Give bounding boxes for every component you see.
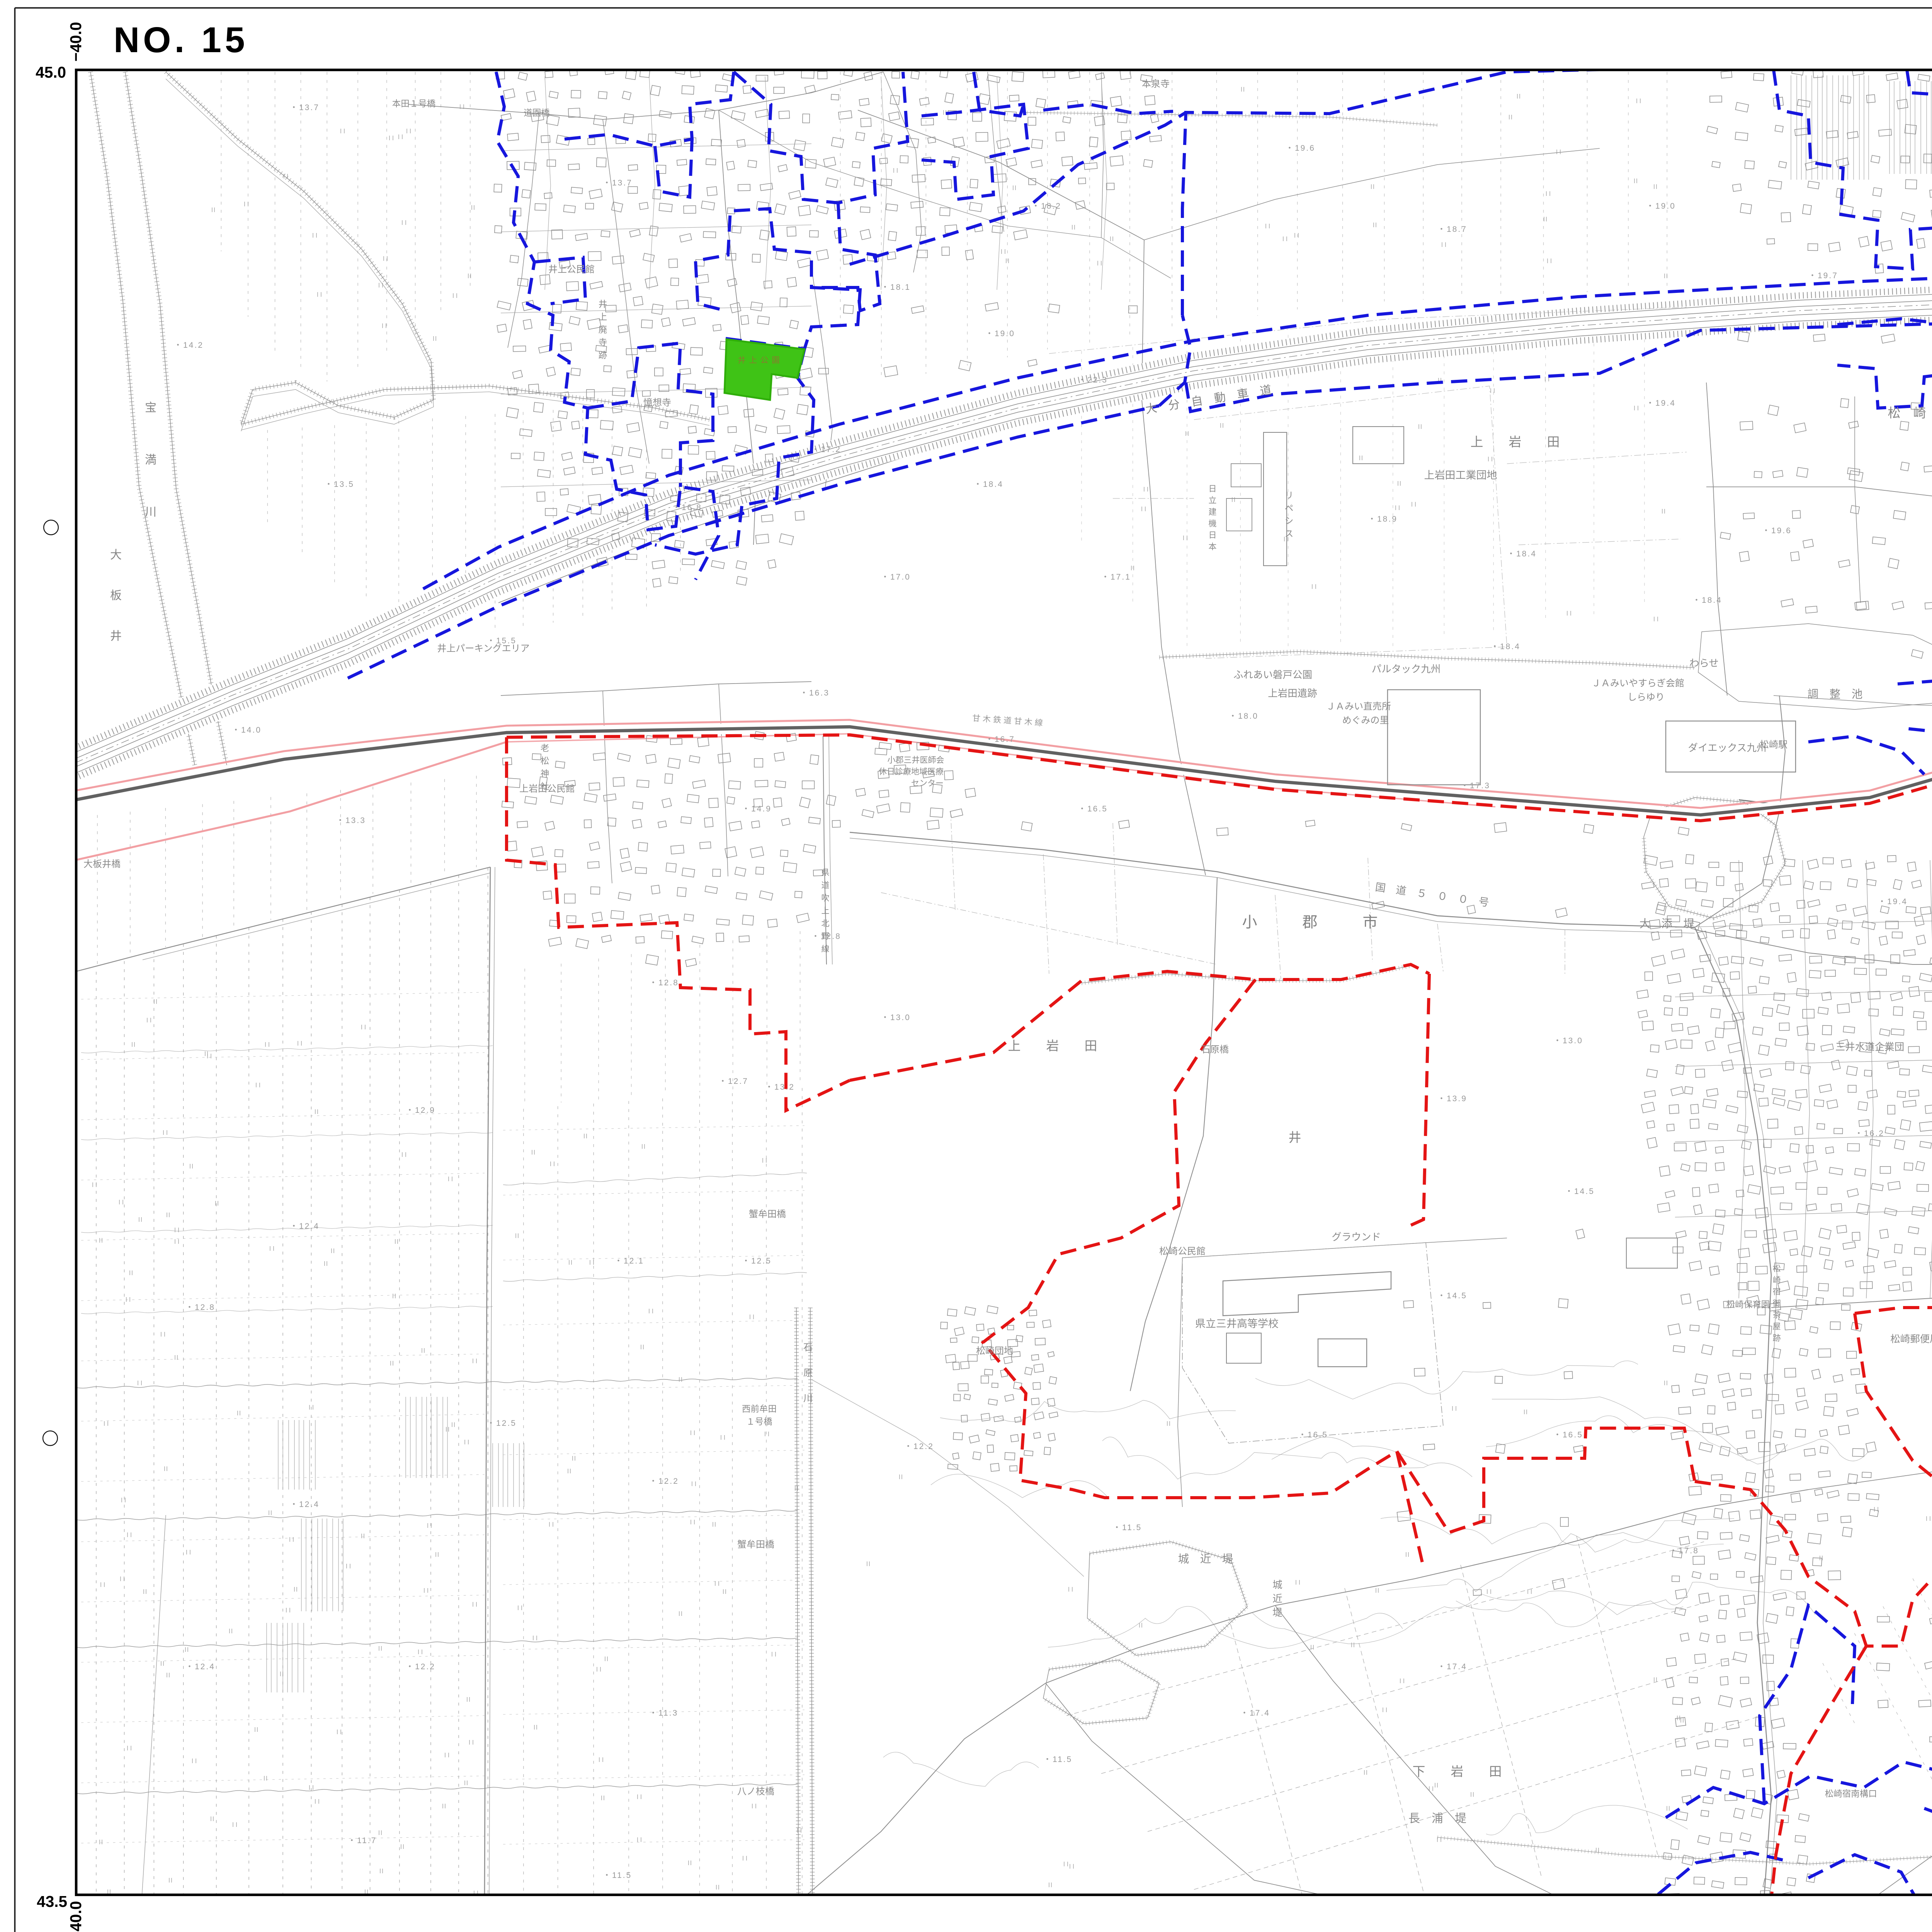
svg-text:憶想寺: 憶想寺 xyxy=(643,398,671,408)
svg-text:小 郡 市: 小 郡 市 xyxy=(1242,914,1378,931)
svg-text:上岩田工業団地: 上岩田工業団地 xyxy=(1424,469,1497,481)
svg-text:・19.6: ・19.6 xyxy=(1286,144,1315,153)
svg-text:・18.1: ・18.1 xyxy=(881,283,911,292)
svg-text:・11.3: ・11.3 xyxy=(649,1709,678,1718)
svg-text:井: 井 xyxy=(1289,1130,1301,1145)
svg-text:ダイエックス九州: ダイエックス九州 xyxy=(1688,743,1767,753)
svg-text:本泉寺: 本泉寺 xyxy=(1142,79,1170,89)
svg-text:・16.5: ・16.5 xyxy=(1298,1430,1328,1439)
svg-text:・11.5: ・11.5 xyxy=(1043,1755,1072,1764)
svg-text:県立三井高等学校: 県立三井高等学校 xyxy=(1195,1318,1279,1330)
svg-text:井上公民館: 井上公民館 xyxy=(548,264,595,275)
svg-text:・14.5: ・14.5 xyxy=(1565,1187,1595,1196)
svg-text:・13.0: ・13.0 xyxy=(1553,1036,1583,1045)
svg-text:・13.7: ・13.7 xyxy=(603,179,633,187)
svg-text:松崎駅: 松崎駅 xyxy=(1760,740,1787,750)
svg-text:上岩田遺跡: 上岩田遺跡 xyxy=(1268,688,1317,699)
svg-text:井上公園: 井上公園 xyxy=(738,356,783,365)
svg-text:大 添 堤: 大 添 堤 xyxy=(1639,918,1695,930)
svg-text:上 岩 田: 上 岩 田 xyxy=(1008,1039,1097,1053)
svg-text:・18.2: ・18.2 xyxy=(1032,202,1061,211)
svg-text:・14.9: ・14.9 xyxy=(742,804,772,813)
svg-text:・17.1: ・17.1 xyxy=(1101,573,1131,582)
svg-text:松崎団地: 松崎団地 xyxy=(976,1346,1013,1356)
svg-text:・19.6: ・19.6 xyxy=(1762,526,1792,535)
svg-text:八ノ枝橋: 八ノ枝橋 xyxy=(737,1786,774,1797)
svg-text:・12.7: ・12.7 xyxy=(719,1077,748,1086)
svg-text:・16.3: ・16.3 xyxy=(800,689,830,697)
svg-text:・14.0: ・14.0 xyxy=(232,726,262,735)
svg-text:下 岩 田: 下 岩 田 xyxy=(1413,1764,1502,1779)
svg-text:石原川: 石原川 xyxy=(803,1342,813,1404)
svg-text:わらせ: わらせ xyxy=(1689,658,1719,669)
svg-text:・16.7: ・16.7 xyxy=(985,735,1015,744)
svg-text:・13.5: ・13.5 xyxy=(325,480,354,489)
svg-text:・17.4: ・17.4 xyxy=(1240,1709,1270,1718)
svg-text:グラウンド: グラウンド xyxy=(1332,1232,1381,1243)
svg-text:松崎宿御茶屋跡: 松崎宿御茶屋跡 xyxy=(1773,1264,1781,1343)
svg-text:・19.4: ・19.4 xyxy=(1878,897,1908,906)
svg-text:・12.5: ・12.5 xyxy=(487,1419,517,1428)
svg-text:・19.0: ・19.0 xyxy=(1646,202,1676,211)
svg-text:45.0: 45.0 xyxy=(36,63,66,81)
svg-text:・12.8: ・12.8 xyxy=(185,1303,215,1312)
svg-text:・17.3: ・17.3 xyxy=(1461,781,1490,790)
svg-text:・13.7: ・13.7 xyxy=(290,103,320,112)
svg-text:センター: センター xyxy=(911,779,944,788)
svg-text:・12.8: ・12.8 xyxy=(649,978,679,987)
svg-text:・12.8: ・12.8 xyxy=(811,932,841,941)
svg-text:・12.4: ・12.4 xyxy=(290,1222,320,1231)
svg-text:・17.8: ・17.8 xyxy=(1669,1546,1699,1555)
svg-text:松 崎: 松 崎 xyxy=(1888,406,1926,420)
svg-text:・12.1: ・12.1 xyxy=(614,1257,644,1265)
svg-text:・12.2: ・12.2 xyxy=(406,1662,435,1671)
svg-text:・17.0: ・17.0 xyxy=(881,573,911,582)
svg-text:・18.9: ・18.9 xyxy=(1368,515,1398,524)
svg-text:・11.7: ・11.7 xyxy=(348,1836,377,1845)
svg-text:蟹牟田橋: 蟹牟田橋 xyxy=(749,1209,786,1219)
svg-text:・14.5: ・14.5 xyxy=(1437,1291,1467,1300)
svg-text:道園橋: 道園橋 xyxy=(524,108,550,118)
svg-text:・19.0: ・19.0 xyxy=(985,329,1015,338)
svg-text:城近堤: 城近堤 xyxy=(1272,1580,1282,1618)
svg-text:小郡三井医師会: 小郡三井医師会 xyxy=(888,756,944,765)
svg-text:・11.5: ・11.5 xyxy=(1113,1523,1142,1532)
svg-text:松崎公民館: 松崎公民館 xyxy=(1159,1246,1206,1257)
svg-text:調 整 池: 調 整 池 xyxy=(1808,688,1863,701)
svg-text:パルタック九州: パルタック九州 xyxy=(1372,664,1441,675)
svg-text:石原橋: 石原橋 xyxy=(1201,1044,1229,1055)
svg-text:・12.9: ・12.9 xyxy=(406,1106,435,1115)
svg-text:・22.3: ・22.3 xyxy=(1078,376,1108,384)
svg-text:・13.0: ・13.0 xyxy=(881,1013,911,1022)
svg-text:・19.4: ・19.4 xyxy=(1646,399,1676,408)
svg-text:しらゆり: しらゆり xyxy=(1628,692,1665,702)
svg-text:松崎保育園: 松崎保育園 xyxy=(1726,1300,1770,1310)
svg-text:・11.5: ・11.5 xyxy=(603,1871,632,1880)
svg-text:蟹牟田橋: 蟹牟田橋 xyxy=(737,1539,774,1550)
svg-text:三井水道企業団: 三井水道企業団 xyxy=(1835,1042,1905,1053)
svg-text:城 近 堤: 城 近 堤 xyxy=(1178,1553,1233,1565)
svg-text:・12.4: ・12.4 xyxy=(290,1500,320,1509)
svg-text:長 浦 堤: 長 浦 堤 xyxy=(1408,1812,1466,1825)
svg-text:松崎宿南構口: 松崎宿南構口 xyxy=(1825,1789,1877,1799)
svg-text:ＪＡみいやすらぎ会館: ＪＡみいやすらぎ会館 xyxy=(1592,678,1684,689)
svg-text:井上廃寺跡: 井上廃寺跡 xyxy=(599,299,607,360)
svg-text:ふれあい磐戸公園: ふれあい磐戸公園 xyxy=(1233,670,1312,680)
svg-text:大板井橋: 大板井橋 xyxy=(83,859,121,869)
svg-text:・12.5: ・12.5 xyxy=(742,1257,772,1265)
svg-text:・18.4: ・18.4 xyxy=(1692,596,1722,605)
svg-text:上 岩 田: 上 岩 田 xyxy=(1471,435,1560,449)
svg-text:・17.4: ・17.4 xyxy=(1437,1662,1467,1671)
svg-text:・18.4: ・18.4 xyxy=(1491,642,1520,651)
svg-text:松崎郵便局: 松崎郵便局 xyxy=(1890,1334,1932,1345)
svg-text:−40.0: −40.0 xyxy=(67,22,85,61)
svg-text:・17.2: ・17.2 xyxy=(811,445,841,454)
svg-text:ＪＡみい直売所: ＪＡみい直売所 xyxy=(1326,701,1391,712)
svg-text:・18.4: ・18.4 xyxy=(1507,549,1537,558)
svg-text:本田１号橋: 本田１号橋 xyxy=(392,99,436,109)
svg-text:・12.4: ・12.4 xyxy=(185,1662,215,1671)
svg-text:・14.2: ・14.2 xyxy=(174,341,204,350)
svg-text:・16.5: ・16.5 xyxy=(1553,1430,1583,1439)
svg-text:43.5: 43.5 xyxy=(37,1893,67,1910)
svg-text:・18.7: ・18.7 xyxy=(1437,225,1467,234)
svg-text:休日診療地域医療: 休日診療地域医療 xyxy=(879,767,944,776)
svg-text:・16.8: ・16.8 xyxy=(672,503,702,512)
svg-text:・18.4: ・18.4 xyxy=(974,480,1003,489)
svg-text:・16.5: ・16.5 xyxy=(1078,804,1108,813)
svg-text:西前牟田: 西前牟田 xyxy=(742,1404,777,1414)
svg-text:１号橋: １号橋 xyxy=(746,1417,772,1427)
svg-text:・13.2: ・13.2 xyxy=(765,1083,795,1092)
svg-text:・18.0: ・18.0 xyxy=(1229,712,1259,721)
svg-text:・12.2: ・12.2 xyxy=(904,1442,934,1451)
svg-text:・16.2: ・16.2 xyxy=(1855,1129,1884,1138)
svg-text:・15.5: ・15.5 xyxy=(487,636,517,645)
svg-text:めぐみの里: めぐみの里 xyxy=(1342,715,1389,726)
svg-text:・13.9: ・13.9 xyxy=(1437,1094,1467,1103)
svg-text:・19.7: ・19.7 xyxy=(1808,271,1838,280)
svg-text:・12.2: ・12.2 xyxy=(649,1477,679,1486)
svg-text:・13.3: ・13.3 xyxy=(336,816,366,825)
svg-text:NO. 15: NO. 15 xyxy=(114,20,248,60)
svg-text:−40.0: −40.0 xyxy=(67,1901,85,1932)
svg-text:上岩田公民館: 上岩田公民館 xyxy=(519,784,575,794)
